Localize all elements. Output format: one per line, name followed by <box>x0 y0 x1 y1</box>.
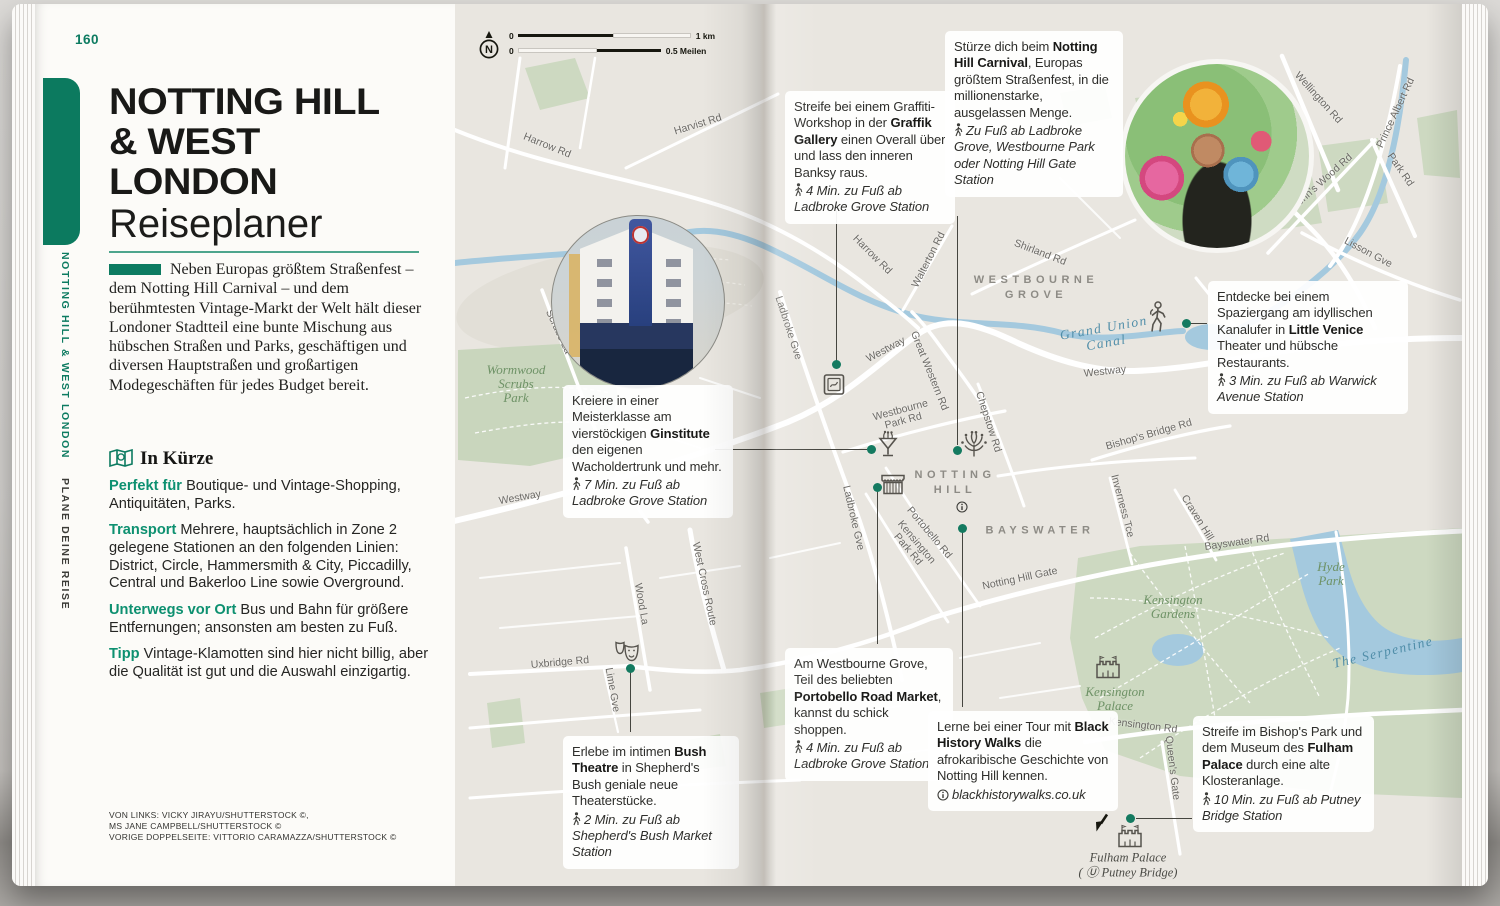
map: N 0 1 km 0 0.5 Meilen <box>455 4 1462 886</box>
walking-directions: Zu Fuß ab Ladbroke Grove, Westbourne Par… <box>954 123 1114 189</box>
sidebar-chapter-title: NOTTING HILL & WEST LONDON <box>59 252 71 459</box>
walking-directions: 7 Min. zu Fuß ab Ladbroke Grove Station <box>572 477 724 510</box>
list-item: Perfekt für Boutique- und Vintage-Shoppi… <box>109 478 431 514</box>
callout-connector-line <box>962 532 963 707</box>
callout-text: Kreiere in einer Meisterklasse am vierst… <box>572 393 724 475</box>
scale-seg <box>613 33 691 39</box>
scale-km: 0 1 km <box>509 30 715 41</box>
walking-directions: 2 Min. zu Fuß ab Shepherd's Bush Market … <box>572 812 730 861</box>
callout-text: Stürze dich beim Notting Hill Carnival, … <box>954 39 1114 121</box>
callout-text: Erlebe im intimen Bush Theatre in Shephe… <box>572 744 730 810</box>
intro-paragraph: Neben Europas größtem Straßenfest – dem … <box>109 260 423 395</box>
title-line-3: LONDON <box>109 162 380 202</box>
page-number: 160 <box>75 32 99 47</box>
book-spread: 160 NOTTING HILL & WEST LONDON PLANE DEI… <box>0 0 1500 906</box>
park-label: WormwoodScrubsPark <box>487 363 546 405</box>
title-line-1: NOTTING HILL <box>109 82 380 122</box>
poi-label: Fulham Palace( Ⓤ Putney Bridge) <box>1079 851 1178 880</box>
map-marker-dot <box>953 446 962 455</box>
scale-rows: 0 1 km 0 0.5 Meilen <box>509 30 715 56</box>
svg-text:N: N <box>485 44 493 56</box>
map-callout-little-venice: Entdecke bei einem Spaziergang am idylli… <box>1208 281 1408 414</box>
page-stack-left <box>12 4 35 886</box>
scale-miles: 0 0.5 Meilen <box>509 45 715 56</box>
callout-connector-line <box>836 211 837 361</box>
callout-connector-line <box>877 491 878 644</box>
map-callout-graffik-gallery: Streife bei einem Graffiti-Workshop in d… <box>785 91 955 224</box>
map-callout-ginstitute: Kreiere in einer Meisterklasse am vierst… <box>563 385 733 518</box>
in-kuerze-list: Perfekt für Boutique- und Vintage-Shoppi… <box>109 478 431 690</box>
list-item: Transport Mehrere, hauptsächlich in Zone… <box>109 522 431 593</box>
carnival-dancer-photo <box>1120 59 1314 253</box>
map-callout-notting-hill-carnival: Stürze dich beim Notting Hill Carnival, … <box>945 31 1123 197</box>
scale-seg <box>518 34 613 38</box>
in-kuerze-label: In Kürze <box>140 448 213 469</box>
page-subtitle: Reiseplaner <box>109 202 322 247</box>
park-label: HydePark <box>1317 560 1344 588</box>
page-stack-right <box>1462 4 1488 886</box>
chapter-sidebar-text: NOTTING HILL & WEST LONDON PLANE DEINE R… <box>59 252 71 692</box>
callout-connector-line <box>1136 818 1192 819</box>
in-kuerze-heading: In Kürze <box>109 448 213 470</box>
map-marker-dot <box>867 445 876 454</box>
ginstitute-pub-photo <box>551 215 725 389</box>
kensington-palace-icon <box>1092 653 1124 684</box>
north-arrow-icon: N <box>477 30 501 62</box>
callout-text: Streife im Bishop's Park und dem Museum … <box>1202 724 1365 790</box>
district-label: NOTTINGHILL <box>915 468 996 498</box>
photo-credits: VON LINKS: VICKY JIRAYU/SHUTTERSTOCK ©, … <box>109 810 396 842</box>
fulham-palace-icon <box>1114 822 1146 853</box>
map-marker-dot <box>1126 814 1135 823</box>
callout-connector-line <box>1188 323 1207 324</box>
district-label: BAYSWATER <box>986 524 1095 539</box>
scale-seg <box>597 49 661 53</box>
sidebar-section-title: PLANE DEINE REISE <box>59 478 71 610</box>
walking-directions: 3 Min. zu Fuß ab Warwick Avenue Station <box>1217 373 1399 406</box>
title-line-2: & WEST <box>109 122 380 162</box>
callout-connector-line <box>957 216 958 445</box>
list-item: Tipp Vintage-Klamotten sind hier nicht b… <box>109 646 431 682</box>
map-marker-dot <box>873 483 882 492</box>
list-item: Unterwegs vor Ort Bus und Bahn für größe… <box>109 602 431 638</box>
map-marker-dot <box>1182 319 1191 328</box>
park-label: KensingtonPalace <box>1085 685 1144 713</box>
map-callout-fulham-palace: Streife im Bishop's Park und dem Museum … <box>1193 716 1374 832</box>
market-stall-icon <box>878 470 908 503</box>
map-marker-dot <box>626 664 635 673</box>
open-guidebook: 160 NOTTING HILL & WEST LONDON PLANE DEI… <box>12 4 1488 886</box>
gin-distillery-icon <box>873 430 903 465</box>
intro-text: Neben Europas größtem Straßenfest – dem … <box>109 261 421 394</box>
district-label: WESTBOURNEGROVE <box>974 273 1098 303</box>
callout-text: Streife bei einem Graffiti-Workshop in d… <box>794 99 946 181</box>
offmap-arrow-icon <box>1093 813 1111 840</box>
park-label: KensingtonGardens <box>1143 593 1202 621</box>
website-note: blackhistorywalks.co.uk <box>937 787 1109 803</box>
callout-text: Lerne bei einer Tour mit Black History W… <box>937 719 1109 785</box>
scale-seg <box>518 48 597 54</box>
callout-connector-line <box>715 449 867 450</box>
visitor-info-icon <box>956 500 968 518</box>
map-callout-bush-theatre: Erlebe im intimen Bush Theatre in Shephe… <box>563 736 739 869</box>
page-title: NOTTING HILL & WEST LONDON <box>109 82 380 202</box>
map-scale: N 0 1 km 0 0.5 Meilen <box>477 30 715 62</box>
divider-rule <box>109 251 419 253</box>
map-marker-dot <box>832 360 841 369</box>
walking-directions: 4 Min. zu Fuß ab Ladbroke Grove Station <box>794 740 944 773</box>
callout-text: Entdecke bei einem Spaziergang am idylli… <box>1217 289 1399 371</box>
callout-connector-line <box>630 666 631 732</box>
map-callout-black-history-walks: Lerne bei einer Tour mit Black History W… <box>928 711 1118 811</box>
chapter-tab <box>43 78 80 245</box>
graffiti-gallery-icon <box>822 373 846 402</box>
walking-directions: 10 Min. zu Fuß ab Putney Bridge Station <box>1202 792 1365 825</box>
map-marker-dot <box>958 524 967 533</box>
map-icon <box>109 449 133 467</box>
callout-text: Am Westbourne Grove, Teil des beliebten … <box>794 656 944 738</box>
walking-directions: 4 Min. zu Fuß ab Ladbroke Grove Station <box>794 183 946 216</box>
intro-marker <box>109 264 161 275</box>
left-page: 160 NOTTING HILL & WEST LONDON PLANE DEI… <box>35 4 455 886</box>
